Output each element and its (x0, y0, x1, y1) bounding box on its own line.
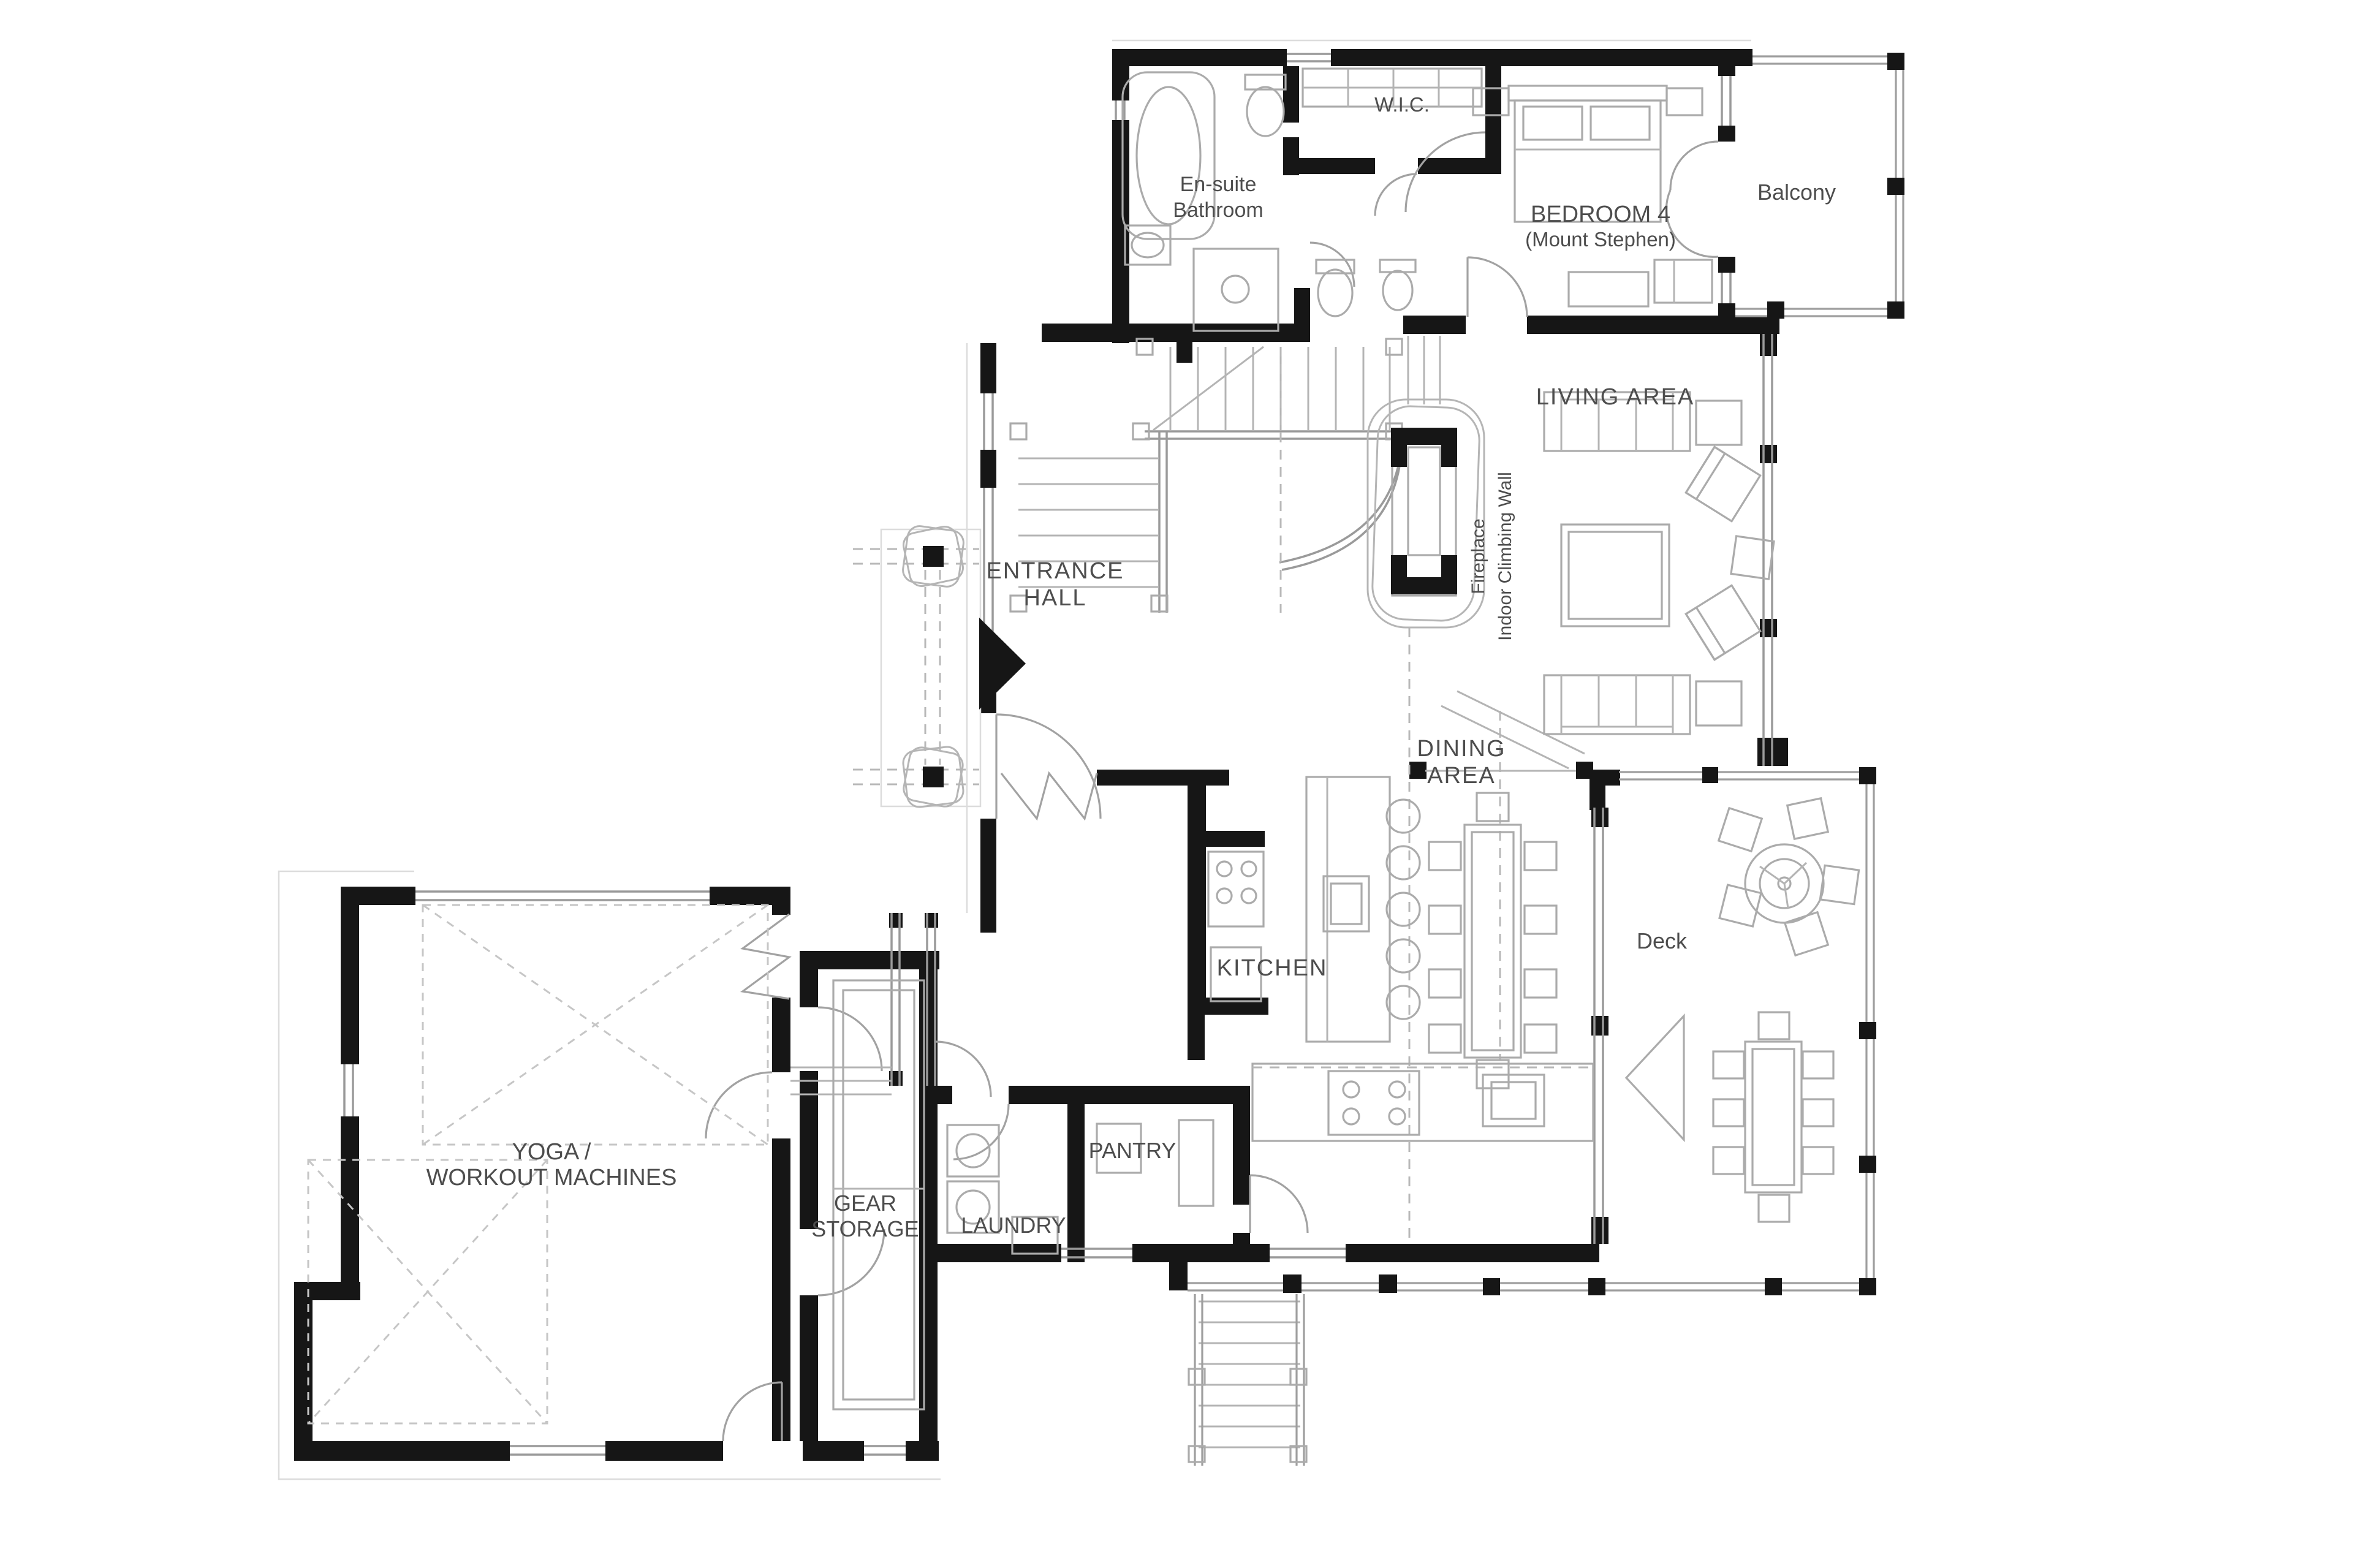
deck-furniture (1626, 798, 1859, 1222)
floor-plan-canvas: W.I.C. En-suite Bathroom BEDROOM 4 (Moun… (0, 0, 2353, 1568)
label-gear-1: GEAR (834, 1191, 896, 1216)
floor-plan-page: W.I.C. En-suite Bathroom BEDROOM 4 (Moun… (0, 0, 2353, 1568)
label-kitchen: KITCHEN (1217, 955, 1328, 981)
label-wic: W.I.C. (1374, 93, 1430, 116)
living-furniture (1544, 392, 1774, 734)
label-ensuite-1: En-suite (1180, 173, 1257, 196)
label-climbing-wall: Indoor Climbing Wall (1495, 472, 1515, 641)
label-gear-2: STORAGE (811, 1216, 919, 1241)
dining-table (1429, 793, 1556, 1088)
label-dining-1: DINING (1417, 736, 1506, 762)
label-pantry: PANTRY (1089, 1138, 1176, 1163)
label-laundry: LAUNDRY (961, 1213, 1066, 1238)
label-balcony: Balcony (1757, 180, 1836, 205)
label-living: LIVING AREA (1536, 384, 1695, 410)
deck-stairs (1189, 1294, 1306, 1466)
bathroom-fixtures (1123, 72, 1415, 331)
label-entrance-2: HALL (1023, 585, 1086, 611)
ceiling-lines (1409, 627, 1585, 1244)
pantry-shelves (1097, 1120, 1213, 1206)
walls (294, 49, 1788, 1461)
roof-outline (279, 40, 1751, 1479)
label-bedroom4-1: BEDROOM 4 (1531, 202, 1670, 227)
label-yoga-2: WORKOUT MACHINES (426, 1165, 677, 1191)
label-bedroom4-2: (Mount Stephen) (1525, 228, 1676, 251)
label-dining-2: AREA (1427, 763, 1495, 789)
label-deck: Deck (1637, 928, 1688, 953)
fireplace (1368, 336, 1484, 627)
label-fireplace: Fireplace (1468, 518, 1488, 594)
label-yoga-1: YOGA / (512, 1139, 591, 1165)
entry-arrow-icon (979, 618, 1026, 710)
label-entrance-1: ENTRANCE (986, 558, 1124, 584)
label-ensuite-2: Bathroom (1173, 199, 1263, 222)
